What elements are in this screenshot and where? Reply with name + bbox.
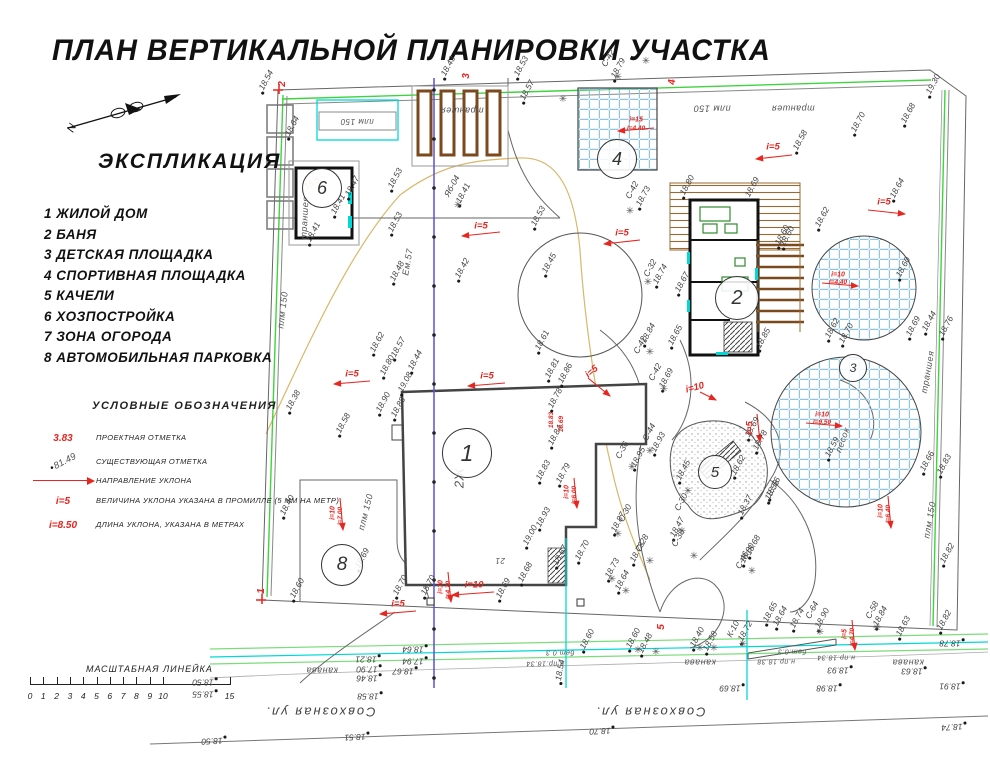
tree-icon: ✳ (626, 207, 634, 217)
explication-item: 2 БАНЯ (44, 225, 272, 246)
tree-icon: ✳ (628, 463, 636, 473)
elevation-project-label: i=10 (878, 504, 885, 518)
tree-icon: ✳ (710, 644, 718, 654)
legend-description: ДЛИНА УКЛОНА, УКАЗАНА В МЕТРАХ (96, 520, 244, 529)
elevation-project-label: i=5 (480, 371, 493, 381)
tree-icon: ✳ (614, 73, 622, 83)
elevation-project-label: i=5 (766, 142, 779, 152)
scale-tick-label: 9 (147, 691, 152, 701)
elevation-project-label: i=5 (615, 228, 628, 238)
scale-tick-label: 6 (107, 691, 112, 701)
elevation-existing-label: 18.78 (939, 639, 960, 648)
utility-line-label: бет.0.3 (778, 648, 807, 655)
scale-tick-label: 5 (94, 691, 99, 701)
elevation-project-label: i=10 (815, 412, 829, 419)
explication-item: 5 КАЧЕЛИ (44, 286, 272, 307)
boundary-point-number: 1 (257, 588, 267, 594)
page: { "title": "ПЛАН ВЕРТИКАЛЬНОЙ ПЛАНИРОВКИ… (0, 0, 990, 764)
elevation-project-label: i=10 (438, 580, 445, 594)
tree-icon: ✳ (684, 487, 692, 497)
boundary-point-number: 5 (657, 624, 667, 630)
scale-tick-label: 1 (41, 691, 46, 701)
scale-tick (230, 677, 231, 685)
elevation-project-label: i=15 (629, 117, 643, 124)
scale-tick (150, 677, 151, 685)
elevation-project-label: i=5 (391, 599, 404, 609)
utility-line-label: канава (892, 658, 924, 667)
scale-tick (43, 677, 44, 685)
utility-line-label: 21 (495, 556, 505, 564)
legend-description: СУЩЕСТВУЮЩАЯ ОТМЕТКА (96, 457, 207, 466)
elevation-project-label: i=10 (564, 485, 571, 499)
explication-heading: ЭКСПЛИКАЦИЯ (98, 150, 281, 174)
elevation-existing-label: 17.94 (402, 657, 423, 666)
elevation-project-label: l=4.40 (627, 126, 645, 133)
scale-tick (57, 677, 58, 685)
scale-tick (83, 677, 84, 685)
scale-tick-label: 8 (134, 691, 139, 701)
street-name-label: Совхозная ул. (594, 706, 705, 719)
elevation-existing-label: 18.21 (355, 655, 376, 664)
cable-line (432, 78, 436, 688)
legend-description: НАПРАВЛЕНИЕ УКЛОНА (96, 476, 192, 485)
elevation-project-label: i=5 (345, 369, 358, 379)
tree-icon: ✳ (873, 624, 881, 634)
utility-line-label: н.пр.18.34 (526, 660, 564, 667)
tree-icon: ✳ (559, 95, 567, 105)
tree-icon: ✳ (816, 628, 824, 638)
tree-icon: ✳ (739, 640, 747, 650)
legend-row: i=8.50ДЛИНА УКЛОНА, УКАЗАНА В МЕТРАХ (30, 515, 360, 533)
utility-line-label: плм 150 (693, 104, 730, 113)
elevation-existing-label: 18.64 (402, 645, 423, 654)
scale-tick (136, 677, 137, 685)
area-number-circle: 2 (715, 276, 759, 320)
scale-tick-label: 0 (28, 691, 33, 701)
explication-item: 8 АВТОМОБИЛЬНАЯ ПАРКОВКА (44, 348, 272, 369)
elevation-existing-label: 18.55 (192, 690, 213, 699)
tree-icon: ✳ (748, 567, 756, 577)
elevation-project-label: i=10 (330, 506, 337, 520)
scale-tick-label: 2 (54, 691, 59, 701)
scale-tick-label: 4 (81, 691, 86, 701)
scale-tick (163, 677, 164, 685)
legend-row: 81.49СУЩЕСТВУЮЩАЯ ОТМЕТКА (30, 452, 360, 470)
elevation-project-label: 18.83 (549, 412, 556, 428)
elevation-existing-label: 18.74 (941, 722, 963, 732)
scale-tick-label: 7 (121, 691, 126, 701)
elevation-project-label: l=4.70 (446, 581, 453, 599)
legend-symbol: i=5 (30, 491, 96, 509)
elevation-existing-label: 18.98 (816, 684, 837, 693)
elevation-project-label: i=5 (877, 197, 890, 207)
legend-row: 3.83ПРОЕКТНАЯ ОТМЕТКА (30, 428, 360, 446)
elevation-project-label: i=5 (842, 629, 849, 639)
elevation-project-label: l=9.50 (813, 420, 831, 427)
explication-item: 7 ЗОНА ОГОРОДА (44, 327, 272, 348)
tree-icon: ✳ (642, 57, 650, 67)
tree-icon: ✳ (690, 552, 698, 562)
tree-icon: ✳ (660, 385, 668, 395)
svg-text:N: N (65, 122, 79, 134)
boundary-point-number: 4 (668, 79, 678, 85)
utility-line-label: н.пр.18.38 (757, 658, 795, 665)
tree-icon: ✳ (644, 278, 652, 288)
elevation-existing-label: 18.46 (356, 674, 377, 683)
garden-beds (412, 86, 508, 166)
elevation-existing-label: 18.58 (357, 692, 378, 701)
area-number-circle: 3 (839, 354, 867, 382)
scale-tick (123, 677, 124, 685)
tree-icon: ✳ (646, 447, 654, 457)
scale-tick (110, 677, 111, 685)
elevation-existing-label: 18.67 (392, 667, 413, 676)
tree-icon: ✳ (652, 648, 660, 658)
elevation-existing-label: 18.69 (719, 684, 740, 693)
elevation-existing-label: 18.63 (901, 667, 922, 676)
elevation-project-label: i=5 (745, 421, 755, 434)
elevation-project-label: l=7.00 (338, 507, 345, 525)
explication-item: 6 ХОЗПОСТРОЙКА (44, 307, 272, 328)
street-name-label: Совхозная ул. (264, 706, 375, 719)
explication-item: 3 ДЕТСКАЯ ПЛОЩАДКА (44, 245, 272, 266)
elevation-project-label: l=6.40 (886, 505, 893, 523)
tree-icon: ✳ (608, 575, 616, 585)
elevation-existing-label: 18.50 (201, 736, 223, 746)
elevation-project-label: i=10 (831, 272, 845, 279)
drain-lines (566, 538, 747, 700)
tree-icon: ✳ (614, 530, 622, 540)
elevation-existing-label: 18.50 (192, 678, 213, 687)
utility-line-label: траншея (771, 104, 814, 113)
elevation-existing-label: 18.51 (344, 732, 366, 742)
elevation-project-label: l=4.70 (850, 628, 857, 646)
legend-row: i=5ВЕЛИЧИНА УКЛОНА УКАЗАНА В ПРОМИЛЛЕ (5… (30, 491, 360, 509)
utility-line-label: канава (684, 658, 716, 667)
elevation-existing-label: 17.90 (356, 665, 377, 674)
elevation-project-label: 18.69 (559, 416, 566, 432)
area-number-circle: 6 (302, 168, 342, 208)
tree-icon: ✳ (678, 527, 686, 537)
area-number-circle: 4 (597, 139, 637, 179)
tree-icon: ✳ (634, 646, 642, 656)
page-title: ПЛАН ВЕРТИКАЛЬНОЙ ПЛАНИРОВКИ УЧАСТКА (52, 34, 771, 68)
site-plan-drawing: N (0, 0, 990, 764)
elevation-project-label: l=6.00 (572, 486, 579, 504)
utility-line-label: траншея (440, 106, 483, 115)
legend-description: ПРОЕКТНАЯ ОТМЕТКА (96, 433, 186, 442)
elevation-existing-label: 18.93 (827, 666, 848, 675)
tree-icon: ✳ (646, 348, 654, 358)
dwelling-house (392, 384, 646, 585)
tree-icon: ✳ (646, 557, 654, 567)
bathhouse (670, 183, 804, 355)
scale-tick (97, 677, 98, 685)
legend: 3.83ПРОЕКТНАЯ ОТМЕТКА81.49СУЩЕСТВУЮЩАЯ О… (30, 428, 360, 539)
legend-symbol: 81.49 (30, 452, 96, 470)
tree-icon: ✳ (696, 644, 704, 654)
legend-row: НАПРАВЛЕНИЕ УКЛОНА (30, 476, 360, 485)
elevation-existing-label: 18.91 (939, 682, 960, 691)
utility-line-label: канава (306, 666, 338, 675)
legend-description: ВЕЛИЧИНА УКЛОНА УКАЗАНА В ПРОМИЛЛЕ (5 ММ… (96, 496, 339, 505)
legend-heading: УСЛОВНЫЕ ОБОЗНАЧЕНИЯ (92, 400, 277, 412)
scale-tick-label: 3 (68, 691, 73, 701)
scale-tick-label: 15 (225, 691, 234, 701)
north-arrow-icon: N (65, 94, 181, 134)
scale-tick-label: 10 (158, 691, 167, 701)
boundary-point-number: 2 (278, 81, 288, 87)
elevation-existing-label: 18.70 (589, 726, 611, 736)
tree-icon: ✳ (622, 587, 630, 597)
area-number-circle: 1 (442, 428, 492, 478)
boundary-point-number: 3 (462, 73, 472, 79)
explication-list: 1 ЖИЛОЙ ДОМ2 БАНЯ3 ДЕТСКАЯ ПЛОЩАДКА4 СПО… (44, 204, 272, 368)
area-number-circle: 5 (698, 455, 732, 489)
explication-item: 1 ЖИЛОЙ ДОМ (44, 204, 272, 225)
scale-tick (70, 677, 71, 685)
explication-item: 4 СПОРТИВНАЯ ПЛОЩАДКА (44, 266, 272, 287)
utility-line-label: н.пр.18.34 (817, 654, 855, 661)
legend-symbol: 3.83 (30, 428, 96, 446)
elevation-project-label: i=10 (465, 580, 484, 590)
elevation-project-label: i=5 (474, 221, 487, 231)
slope-direction-arrow-icon (30, 480, 96, 481)
legend-symbol: i=8.50 (30, 515, 96, 533)
scale-tick (30, 677, 31, 685)
tree-icon: ✳ (454, 201, 462, 211)
scale-bar-label: МАСШТАБНАЯ ЛИНЕЙКА (86, 664, 213, 674)
elevation-project-label: l=4.40 (829, 280, 847, 287)
area-number-circle: 8 (321, 544, 363, 586)
utility-line-label: плм 150 (340, 117, 373, 125)
utility-line-label: бет.0.3 (546, 649, 575, 656)
